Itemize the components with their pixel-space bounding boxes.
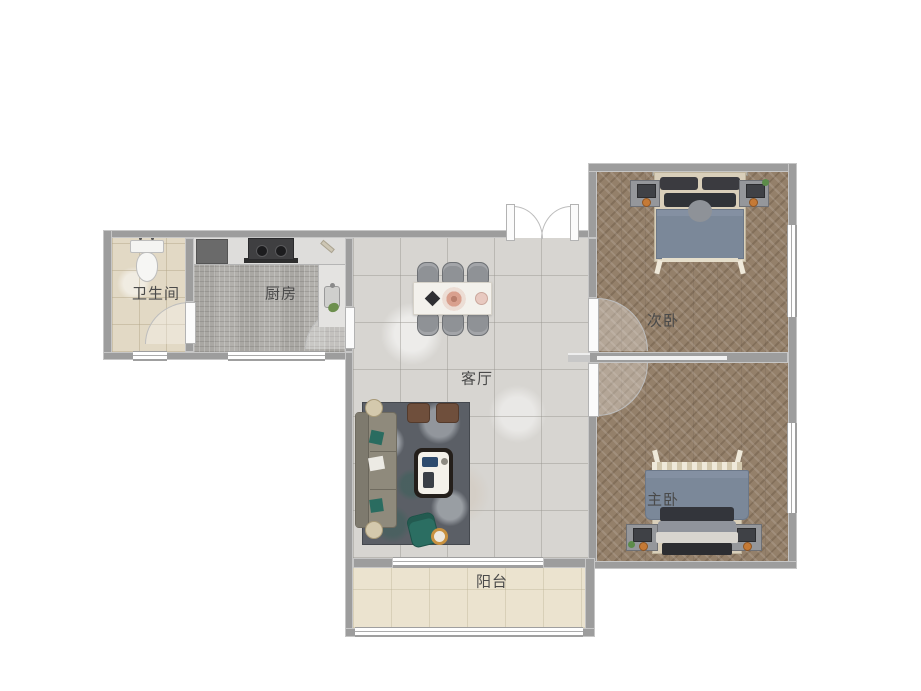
table-tray-blue xyxy=(422,457,438,467)
teal-pillow xyxy=(369,430,384,445)
nightstand xyxy=(739,180,769,207)
room-label-kitchen: 厨房 xyxy=(265,283,297,304)
nightstand-drawer xyxy=(746,184,765,198)
bed-pillow xyxy=(702,177,740,190)
lamp xyxy=(639,542,648,551)
ottoman xyxy=(436,403,459,423)
master-bedroom-door-leaf xyxy=(588,363,599,417)
entry-door-swing-arc-left xyxy=(513,206,543,239)
wall-bedroom-top xyxy=(588,163,797,172)
balcony-floor xyxy=(353,568,585,628)
entry-door-leaf-left xyxy=(506,204,515,241)
bathroom-door-leaf xyxy=(185,302,196,344)
refrigerator xyxy=(196,239,228,264)
balcony-window xyxy=(355,627,583,637)
secondary-bedroom-window xyxy=(787,225,797,317)
white-throw xyxy=(368,456,385,471)
kitchen-window xyxy=(228,351,325,361)
bed-headboard xyxy=(662,543,732,555)
room-label-living-room: 客厅 xyxy=(461,368,493,389)
wall-kitchen-living xyxy=(345,238,353,307)
floor-plan-canvas: 卫生间 厨房 客厅 次卧 主卧 阳台 xyxy=(0,0,921,691)
entry-door-leaf-right xyxy=(570,204,579,241)
wall-bedroom-bottom xyxy=(588,561,797,569)
stove xyxy=(248,238,294,260)
wall-bathroom-left xyxy=(103,230,112,360)
side-table xyxy=(365,399,383,417)
bed-foot-bench xyxy=(662,258,738,262)
dining-chair xyxy=(417,313,439,336)
nightstand-drawer xyxy=(633,528,652,542)
bed-round-cushion xyxy=(688,200,712,222)
kitchen-door-leaf xyxy=(345,307,355,349)
lamp xyxy=(743,542,752,551)
structural-beam xyxy=(568,353,590,362)
dining-table xyxy=(413,282,492,315)
room-label-master-bedroom: 主卧 xyxy=(647,489,679,510)
wall-living-balcony-left xyxy=(353,558,393,568)
floor-decor-basket xyxy=(431,528,448,545)
plant xyxy=(628,541,635,548)
table-plate-dark xyxy=(425,291,441,307)
coffee-table xyxy=(414,448,453,498)
plant xyxy=(762,179,769,186)
balcony-sliding-door xyxy=(393,557,543,568)
nightstand-drawer xyxy=(637,184,656,198)
dining-chair xyxy=(467,313,489,336)
wall-left-outer xyxy=(345,352,353,637)
sofa-cushion-divider xyxy=(370,489,397,490)
table-flower-centerpiece xyxy=(442,287,466,311)
side-table xyxy=(365,521,383,539)
wall-living-balcony-right xyxy=(543,558,588,568)
wall-living-bedroom-upper xyxy=(588,163,597,238)
lamp xyxy=(749,198,758,207)
burner xyxy=(256,245,268,257)
bedroom-divider-core xyxy=(597,356,727,360)
nightstand xyxy=(626,524,658,551)
table-plate-pink xyxy=(475,292,488,305)
wall-living-bedroom-lower xyxy=(588,415,597,569)
secondary-bedroom-door-leaf xyxy=(588,298,599,352)
dining-chair xyxy=(442,313,464,336)
table-bowl xyxy=(441,458,448,465)
nightstand xyxy=(630,180,660,207)
master-bedroom-window xyxy=(787,423,797,513)
room-label-secondary-bedroom: 次卧 xyxy=(647,310,679,331)
room-label-balcony: 阳台 xyxy=(476,571,508,592)
toilet-bowl xyxy=(136,252,158,282)
sofa xyxy=(355,412,397,528)
burner xyxy=(275,245,287,257)
wall-bath-kitchen-divider xyxy=(185,238,194,302)
sofa-cushion-divider xyxy=(370,451,397,452)
bathroom-window xyxy=(133,351,167,361)
nightstand-drawer xyxy=(737,528,756,542)
bed-pillow-row xyxy=(656,532,738,543)
sofa-backrest xyxy=(356,413,369,527)
wall-living-bedroom-mid xyxy=(588,238,597,298)
entry-door-swing-arc-right xyxy=(541,206,571,239)
bed-pillow xyxy=(660,177,698,190)
lamp xyxy=(642,198,651,207)
room-label-bathroom: 卫生间 xyxy=(132,283,180,304)
wall-balcony-right xyxy=(585,558,595,637)
table-tray-dark xyxy=(423,472,434,488)
teal-pillow xyxy=(369,498,384,513)
ottoman xyxy=(407,403,430,423)
faucet xyxy=(330,283,335,288)
